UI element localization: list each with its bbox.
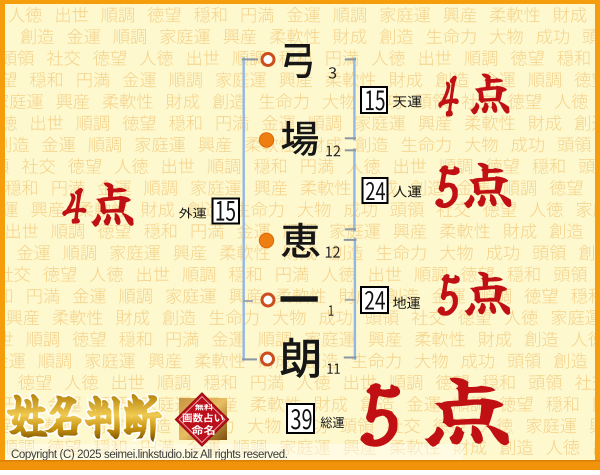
svg-text:Copyright (C) 2025 seimei.link: Copyright (C) 2025 seimei.linkstudio.biz… (11, 449, 288, 461)
